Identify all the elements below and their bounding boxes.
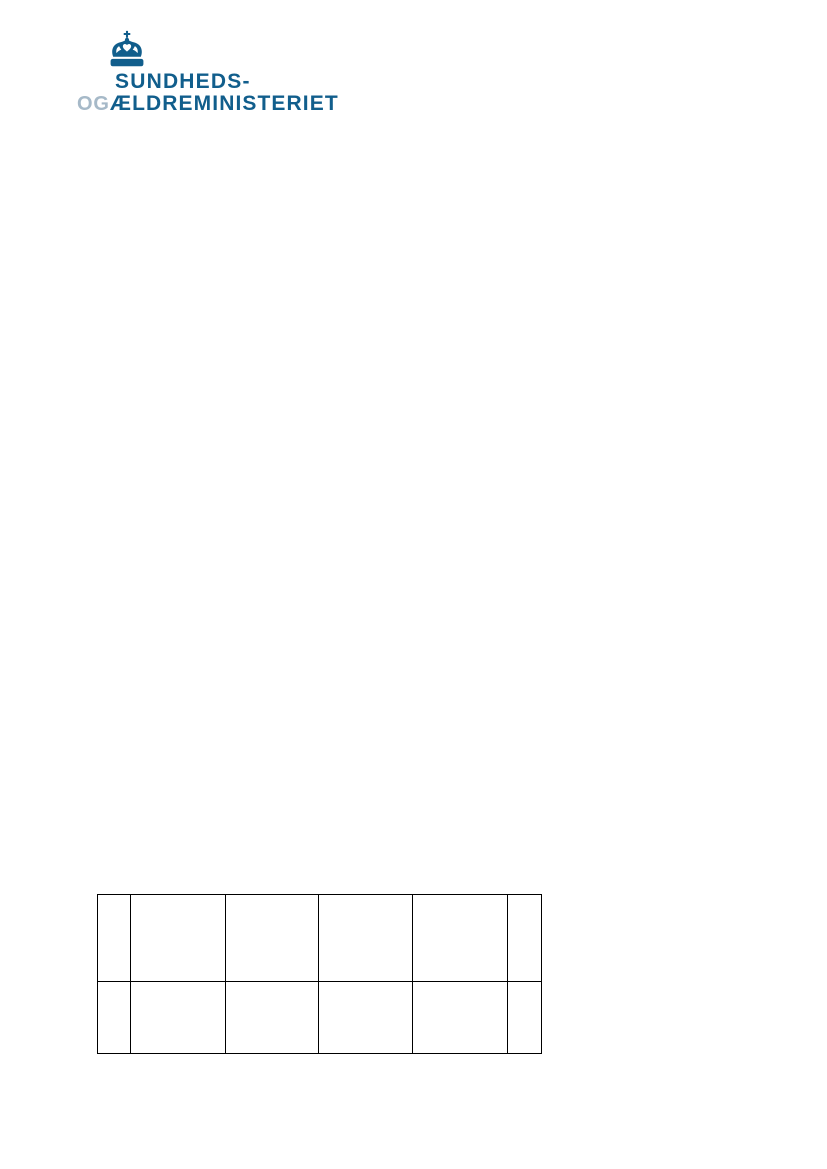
table-cell (319, 895, 413, 982)
logo-text-line1: SUNDHEDS- (115, 71, 251, 92)
table-cell (131, 895, 226, 982)
crown-icon (108, 30, 146, 67)
table-cell (98, 982, 131, 1054)
table-body (98, 895, 542, 1054)
table-cell (413, 982, 508, 1054)
table-cell (226, 895, 319, 982)
table-cell (319, 982, 413, 1054)
table-cell (98, 895, 131, 982)
table-cell (131, 982, 226, 1054)
table-cell (508, 982, 542, 1054)
ministry-logo: SUNDHEDS- OG ÆLDREMINISTERIET (77, 30, 377, 122)
table-cell (413, 895, 508, 982)
table-cell (508, 895, 542, 982)
table-cell (226, 982, 319, 1054)
empty-table (97, 894, 542, 1054)
table-row (98, 895, 542, 982)
table-row (98, 982, 542, 1054)
logo-text-og: OG (77, 94, 110, 114)
logo-text-ministry: ÆLDREMINISTERIET (110, 93, 339, 114)
document-page: SUNDHEDS- OG ÆLDREMINISTERIET (0, 0, 827, 1169)
